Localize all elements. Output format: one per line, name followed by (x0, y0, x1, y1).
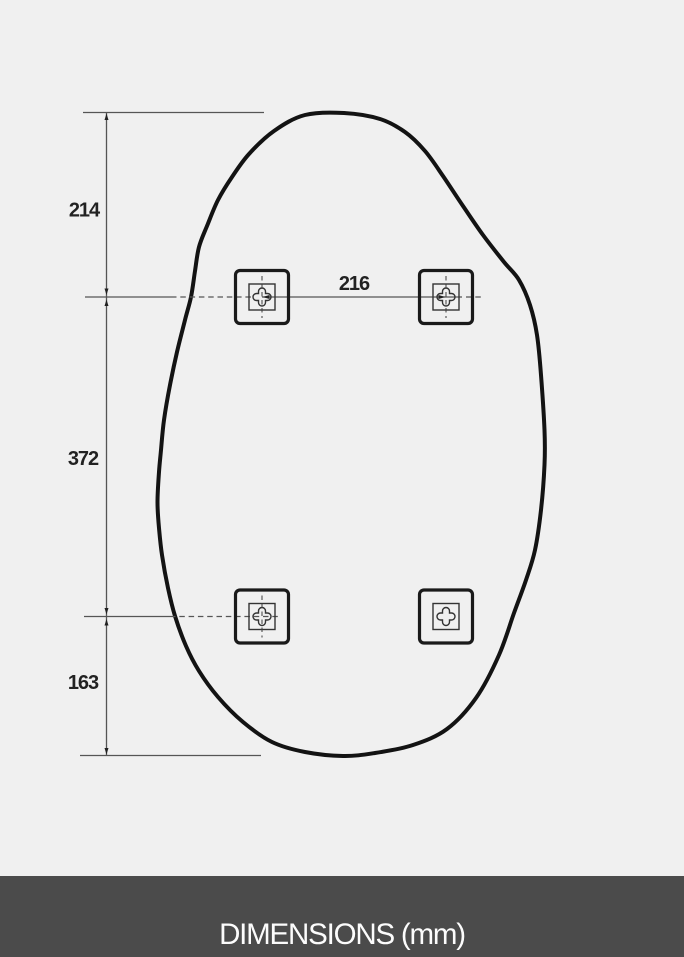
svg-text:163: 163 (68, 672, 99, 694)
svg-text:216: 216 (339, 273, 370, 295)
svg-text:DIMENSIONS (mm): DIMENSIONS (mm) (219, 918, 465, 951)
svg-text:214: 214 (69, 200, 101, 222)
svg-text:372: 372 (68, 448, 99, 470)
